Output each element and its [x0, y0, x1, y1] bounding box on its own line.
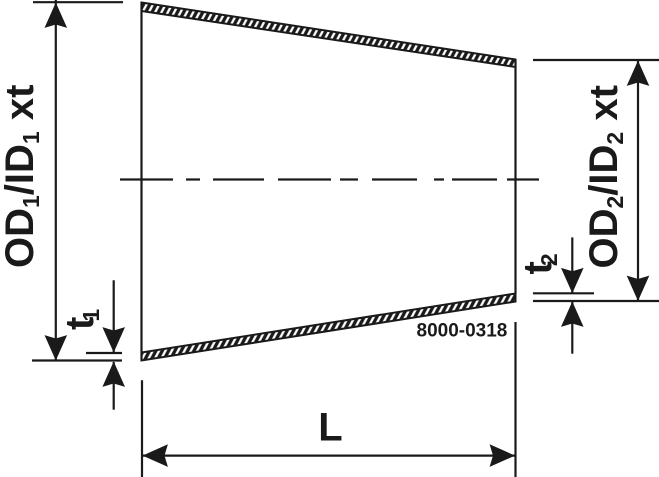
svg-text:OD1/ID1 xt: OD1/ID1 xt — [0, 85, 44, 268]
svg-text:OD2/ID2 xt: OD2/ID2 xt — [582, 85, 628, 268]
svg-text:8000-0318: 8000-0318 — [417, 321, 508, 342]
svg-text:L: L — [318, 406, 342, 450]
